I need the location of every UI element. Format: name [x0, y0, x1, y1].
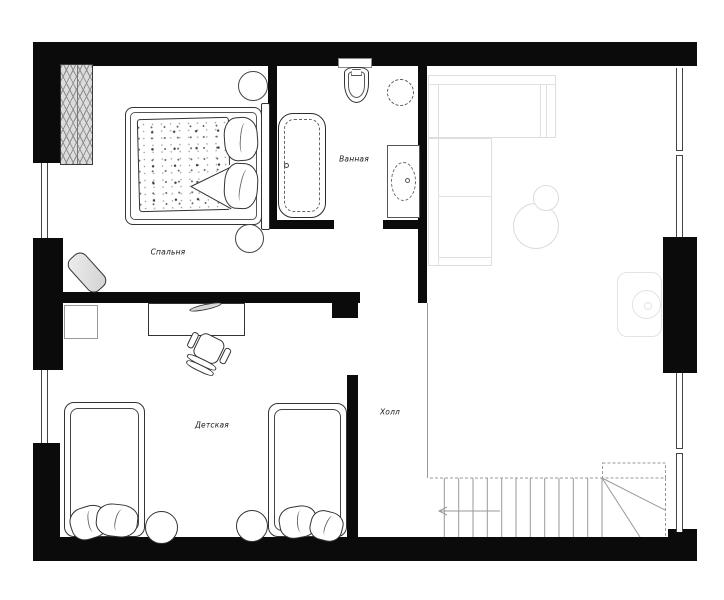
bathtub: [278, 113, 326, 218]
pillow-crease: [296, 510, 304, 532]
toilet: [344, 67, 369, 103]
vanity-sink: [387, 145, 420, 218]
wall-right-pier: [663, 237, 697, 373]
room-label-kids: Детская: [195, 421, 229, 429]
wardrobe-rail: [77, 65, 78, 164]
shelf-box: [64, 305, 98, 339]
side-table-round: [533, 185, 559, 211]
sink-basin: [391, 162, 416, 201]
bathtub-drain: [284, 163, 289, 168]
sofa-arm-line: [540, 84, 541, 137]
wall-left-middle-pier: [33, 238, 63, 370]
wall-kids-hall: [347, 375, 358, 537]
stairwell-edge-line: [427, 303, 428, 478]
wall-door-pier: [332, 303, 358, 318]
toilet-flush: [351, 69, 362, 76]
sofa-arm-line: [438, 84, 439, 137]
window-right-lower: [676, 373, 683, 532]
pillow-crease: [238, 123, 248, 154]
sofa-horizontal-section: [428, 75, 556, 138]
bed-pillow: [223, 116, 260, 162]
nightstand-round-bottom: [235, 224, 264, 253]
coffee-table-round: [513, 203, 559, 249]
room-label-hall: Холл: [380, 408, 400, 416]
pillow-crease: [113, 508, 127, 532]
staircase: [430, 462, 666, 538]
bedroom-bench: [64, 249, 109, 296]
bed-pillow: [94, 502, 139, 539]
appliance: [617, 272, 662, 337]
window-left-lower: [41, 370, 48, 443]
wall-left-upper: [33, 66, 60, 163]
window-mullion: [676, 448, 683, 454]
sink-faucet: [405, 178, 410, 183]
wall-bathroom-bottom-left: [268, 220, 334, 229]
appliance-knob: [644, 302, 652, 310]
wall-left-lower: [33, 443, 60, 537]
bed-pillow: [223, 162, 259, 210]
sofa-arm-line: [438, 139, 439, 265]
pouf-left: [145, 511, 178, 544]
laundry-basket: [387, 79, 414, 106]
floor-plan-canvas: Спальня Ванная: [0, 0, 724, 600]
wall-bottom: [33, 537, 697, 561]
wall-bedroom-south: [60, 292, 360, 303]
window-mullion: [676, 150, 683, 156]
window-right-upper: [676, 68, 683, 237]
nightstand-round-top: [238, 71, 268, 101]
bathtub-inner-line: [284, 119, 320, 212]
sofa-back-line: [429, 84, 555, 85]
pillow-crease: [322, 515, 336, 536]
bed-headboard: [261, 103, 270, 230]
sofa-cushion-line: [438, 257, 491, 258]
pillow-crease: [237, 169, 250, 201]
sofa-arm-line: [546, 84, 547, 137]
room-label-bedroom: Спальня: [151, 248, 186, 256]
wardrobe: [60, 64, 93, 165]
sofa-vertical-section: [428, 138, 492, 266]
room-label-bathroom: Ванная: [339, 155, 369, 163]
pouf-right: [236, 510, 268, 542]
sofa-cushion-line: [438, 196, 491, 197]
window-left-upper: [41, 163, 48, 238]
